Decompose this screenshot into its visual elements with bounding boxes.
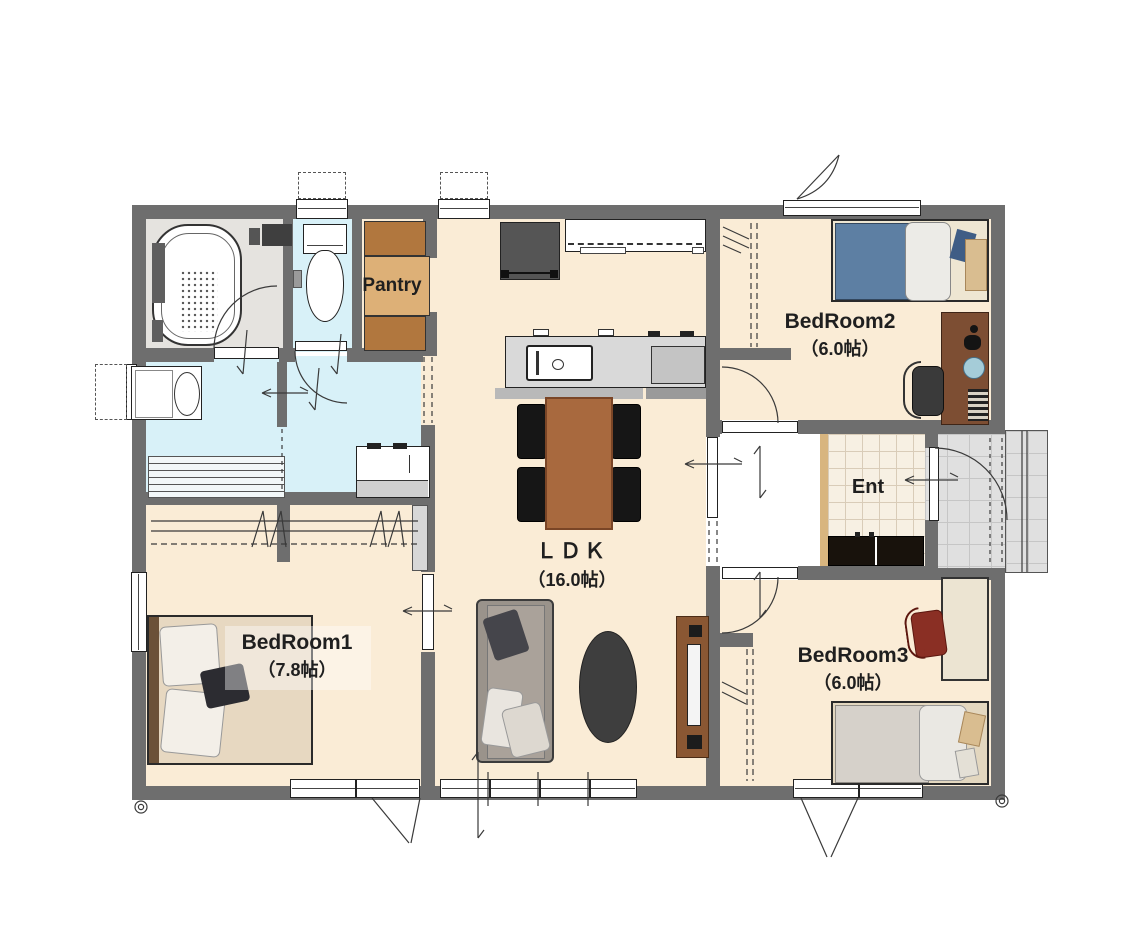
- washroom-shelf: [148, 456, 285, 498]
- tv: [687, 644, 701, 726]
- room-name: BedRoom3: [773, 642, 933, 669]
- cushion: [955, 747, 980, 778]
- hall-floor: [720, 434, 820, 568]
- window-eave-outline: [440, 172, 488, 199]
- window-eave-outline: [298, 172, 346, 199]
- bathtub: [152, 224, 242, 346]
- entrance-label: Ent: [838, 474, 898, 500]
- upper-cabinet-dashed: [568, 243, 702, 245]
- bathroom-door: [214, 347, 279, 359]
- wall: [421, 652, 435, 786]
- toilet-door: [295, 341, 347, 351]
- ldk-label: ＬＤＫ （16.0帖）: [487, 538, 657, 593]
- bed: [831, 701, 989, 785]
- window-swing: [372, 798, 420, 843]
- blanket: [835, 705, 929, 783]
- desk-lamp: [964, 335, 981, 350]
- window: [438, 199, 490, 219]
- wall: [925, 520, 938, 568]
- room-size: （7.8帖）: [217, 659, 377, 682]
- closet-door-panel: [412, 505, 428, 571]
- bedroom3-door: [722, 567, 798, 579]
- rug: [579, 631, 637, 743]
- entrance-step-edge: [820, 434, 828, 568]
- window: [296, 199, 348, 219]
- corner-marker: [138, 804, 143, 809]
- headboard: [149, 617, 159, 763]
- vanity-sink: [356, 446, 430, 498]
- entrance-porch-outside: [1005, 430, 1048, 573]
- dining-table: [545, 397, 613, 530]
- dining-chair: [517, 467, 547, 522]
- casement-arc: [797, 155, 839, 199]
- desk: [941, 312, 989, 425]
- window: [440, 779, 637, 798]
- shoe-cabinet: [828, 536, 924, 566]
- av-device: [687, 735, 702, 749]
- wall: [132, 205, 146, 800]
- wall: [706, 420, 722, 434]
- washing-machine: [131, 366, 202, 420]
- kitchen-sink: [526, 345, 593, 381]
- books: [968, 389, 988, 421]
- island-base: [646, 388, 706, 399]
- bed: [831, 219, 989, 302]
- opening-dash: [709, 521, 717, 565]
- tv-board: [676, 616, 709, 758]
- room-size: （6.0帖）: [760, 338, 920, 361]
- casement-arc: [797, 155, 839, 199]
- cushion: [965, 239, 987, 291]
- corner-marker: [135, 801, 147, 813]
- hall-sliding-door: [707, 437, 718, 518]
- speaker: [689, 625, 702, 637]
- pillow: [905, 222, 951, 301]
- desk: [941, 577, 989, 681]
- burner-mark: [648, 331, 660, 336]
- dining-chair: [611, 467, 641, 522]
- room-name: ＬＤＫ: [487, 538, 657, 565]
- dining-chair: [517, 404, 547, 459]
- washing-machine-drum: [174, 372, 200, 416]
- window: [131, 572, 147, 652]
- desk-chair-back: [903, 361, 921, 419]
- wall: [277, 362, 287, 427]
- island-knob: [598, 329, 614, 336]
- bathtub-pad: [152, 320, 163, 342]
- bedroom2-label: BedRoom2 （6.0帖）: [760, 308, 920, 362]
- water-heater-outline: [95, 364, 127, 420]
- kitchen-counter: [565, 219, 706, 252]
- faucet: [367, 443, 381, 449]
- pantry-shelf: [364, 221, 426, 256]
- bedroom1-label: BedRoom1 （7.8帖）: [217, 629, 377, 683]
- island-knob: [533, 329, 549, 336]
- pantry-label: Pantry: [344, 274, 440, 299]
- wall: [720, 633, 753, 647]
- room-name: BedRoom2: [760, 308, 920, 335]
- refrigerator: [500, 222, 560, 280]
- wall: [706, 219, 720, 437]
- stove: [651, 346, 705, 384]
- floor-plan: Pantry BedRoom2 （6.0帖） Ent ＬＤＫ （16.0帖） B…: [0, 0, 1146, 931]
- bathtub-jet-dots: [180, 270, 218, 332]
- wall: [279, 348, 295, 362]
- window: [290, 779, 420, 798]
- room-size: （6.0帖）: [773, 672, 933, 695]
- burner-mark: [680, 331, 694, 336]
- room-name: BedRoom1: [217, 629, 377, 656]
- desk-lamp: [970, 325, 978, 333]
- bedroom2-door: [722, 421, 798, 433]
- toilet-paper-holder: [293, 270, 302, 288]
- faucet: [393, 443, 407, 449]
- room-size: （16.0帖）: [487, 569, 657, 592]
- bedroom1-sliding-door: [422, 574, 434, 650]
- toilet-bowl: [306, 250, 344, 322]
- shower-unit: [262, 224, 292, 246]
- entrance-door: [929, 447, 939, 521]
- wall: [146, 348, 214, 362]
- window-swing: [801, 798, 858, 857]
- pantry-shelf: [364, 316, 426, 351]
- bedroom3-label: BedRoom3 （6.0帖）: [773, 642, 933, 696]
- wall: [925, 434, 938, 448]
- wall: [277, 492, 290, 562]
- dining-chair: [611, 404, 641, 459]
- window: [783, 200, 921, 216]
- bathtub-pad: [152, 243, 165, 303]
- globe: [963, 357, 985, 379]
- sofa: [476, 599, 554, 763]
- shower-head: [249, 228, 260, 245]
- kitchen-island: [505, 336, 706, 388]
